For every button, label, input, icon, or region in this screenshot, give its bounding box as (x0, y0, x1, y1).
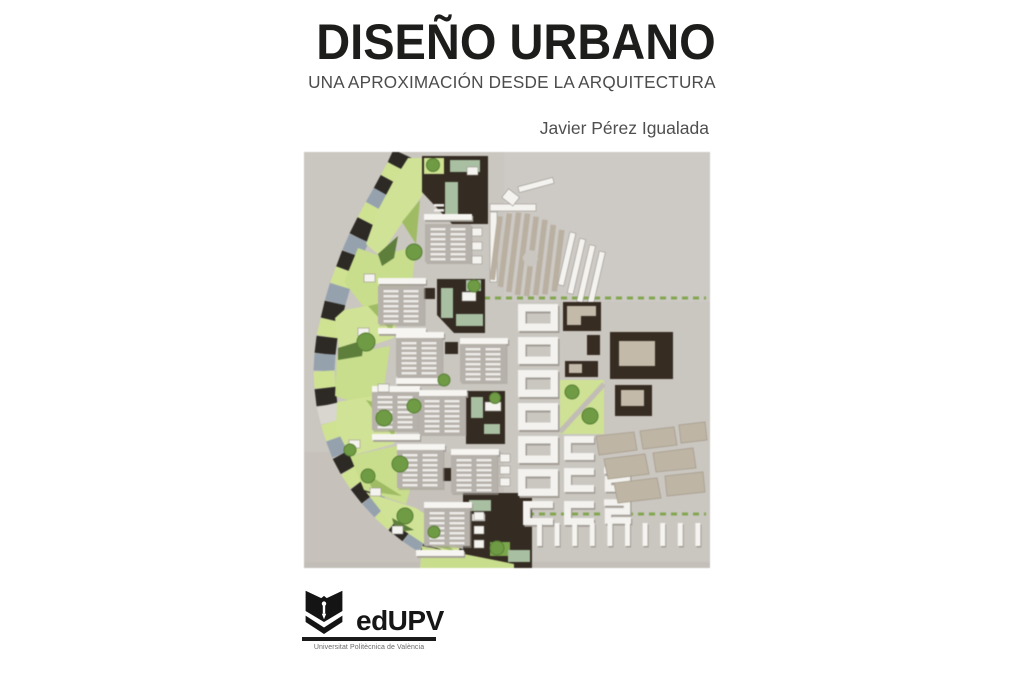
cover-photo (304, 152, 710, 568)
logo-divider-bar (302, 637, 436, 641)
cover-header: DISEÑO URBANO UNA APROXIMACIÓN DESDE LA … (304, 0, 711, 150)
open-book-logo-icon (302, 588, 346, 634)
book-cover-page: DISEÑO URBANO UNA APROXIMACIÓN DESDE LA … (0, 0, 1024, 683)
book-title: DISEÑO URBANO (316, 16, 699, 69)
book-author: Javier Pérez Igualada (540, 118, 709, 139)
book-subtitle: UNA APROXIMACIÓN DESDE LA ARQUITECTURA (308, 72, 707, 93)
publisher-logo: edUPV Universitat Politècnica de Valènci… (302, 588, 438, 654)
urban-model-photo (304, 152, 710, 568)
publisher-name: edUPV (356, 605, 444, 637)
publisher-tagline: Universitat Politècnica de València (302, 644, 436, 651)
